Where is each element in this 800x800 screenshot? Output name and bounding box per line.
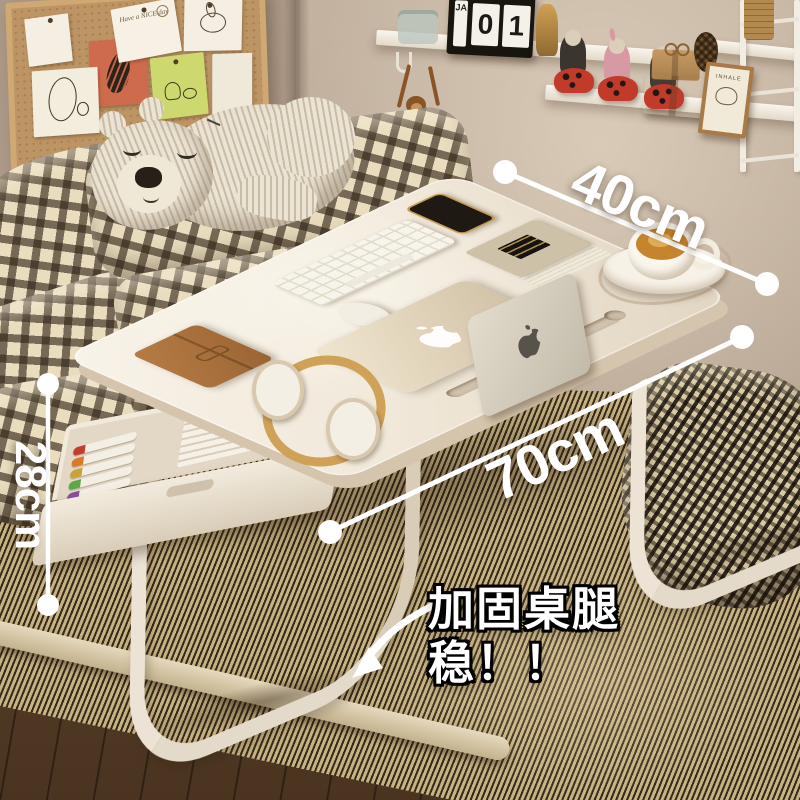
callout-line2: 稳！！ [428, 636, 620, 690]
bear-mouth [143, 191, 159, 203]
headphones-earcup [252, 360, 304, 420]
monkey-arm [428, 66, 440, 106]
frame-bear-sketch [714, 86, 738, 107]
block-calendar: JA 0 1 [446, 0, 535, 58]
calendar-month-tile: JA [453, 0, 468, 47]
headphones-earcup [326, 398, 380, 460]
face-sketch [46, 76, 78, 122]
bear-ear [139, 97, 164, 122]
calendar-day-tile: 0 [471, 3, 500, 46]
bow [676, 43, 689, 56]
corkboard-note-rabbit [184, 0, 243, 51]
doll-ear [609, 28, 616, 42]
dimension-label-height: 28cm [5, 395, 55, 595]
calendar-day-tile: 1 [502, 5, 531, 48]
product-photo-scene: Have a NICE day JA 0 1 [0, 0, 800, 800]
apple-logo-icon [509, 315, 547, 369]
bear-closed-eye [123, 143, 141, 156]
drawer-handle [166, 478, 215, 498]
ladybug [598, 76, 638, 101]
callout-line1: 加固桌腿 [428, 582, 620, 636]
glass-jar [398, 10, 438, 44]
wooden-can [744, 0, 774, 40]
keyboard-spacebar [344, 254, 415, 287]
sun-doodle [156, 4, 170, 18]
frame-text: INHALE [708, 73, 748, 84]
callout-text: 加固桌腿 稳！！ [428, 582, 620, 691]
bear-closed-eye [177, 145, 197, 159]
book-label [497, 234, 551, 259]
doll-head [565, 30, 581, 46]
gift-box-large [642, 73, 707, 118]
bear-nose [135, 167, 162, 188]
notebook-strap [193, 344, 232, 362]
ladybug [554, 68, 594, 93]
picture-frame: INHALE [698, 61, 754, 138]
bear-haunch [267, 97, 355, 177]
shelf-rail [794, 0, 800, 172]
teddy-bear-plush [85, 95, 360, 247]
